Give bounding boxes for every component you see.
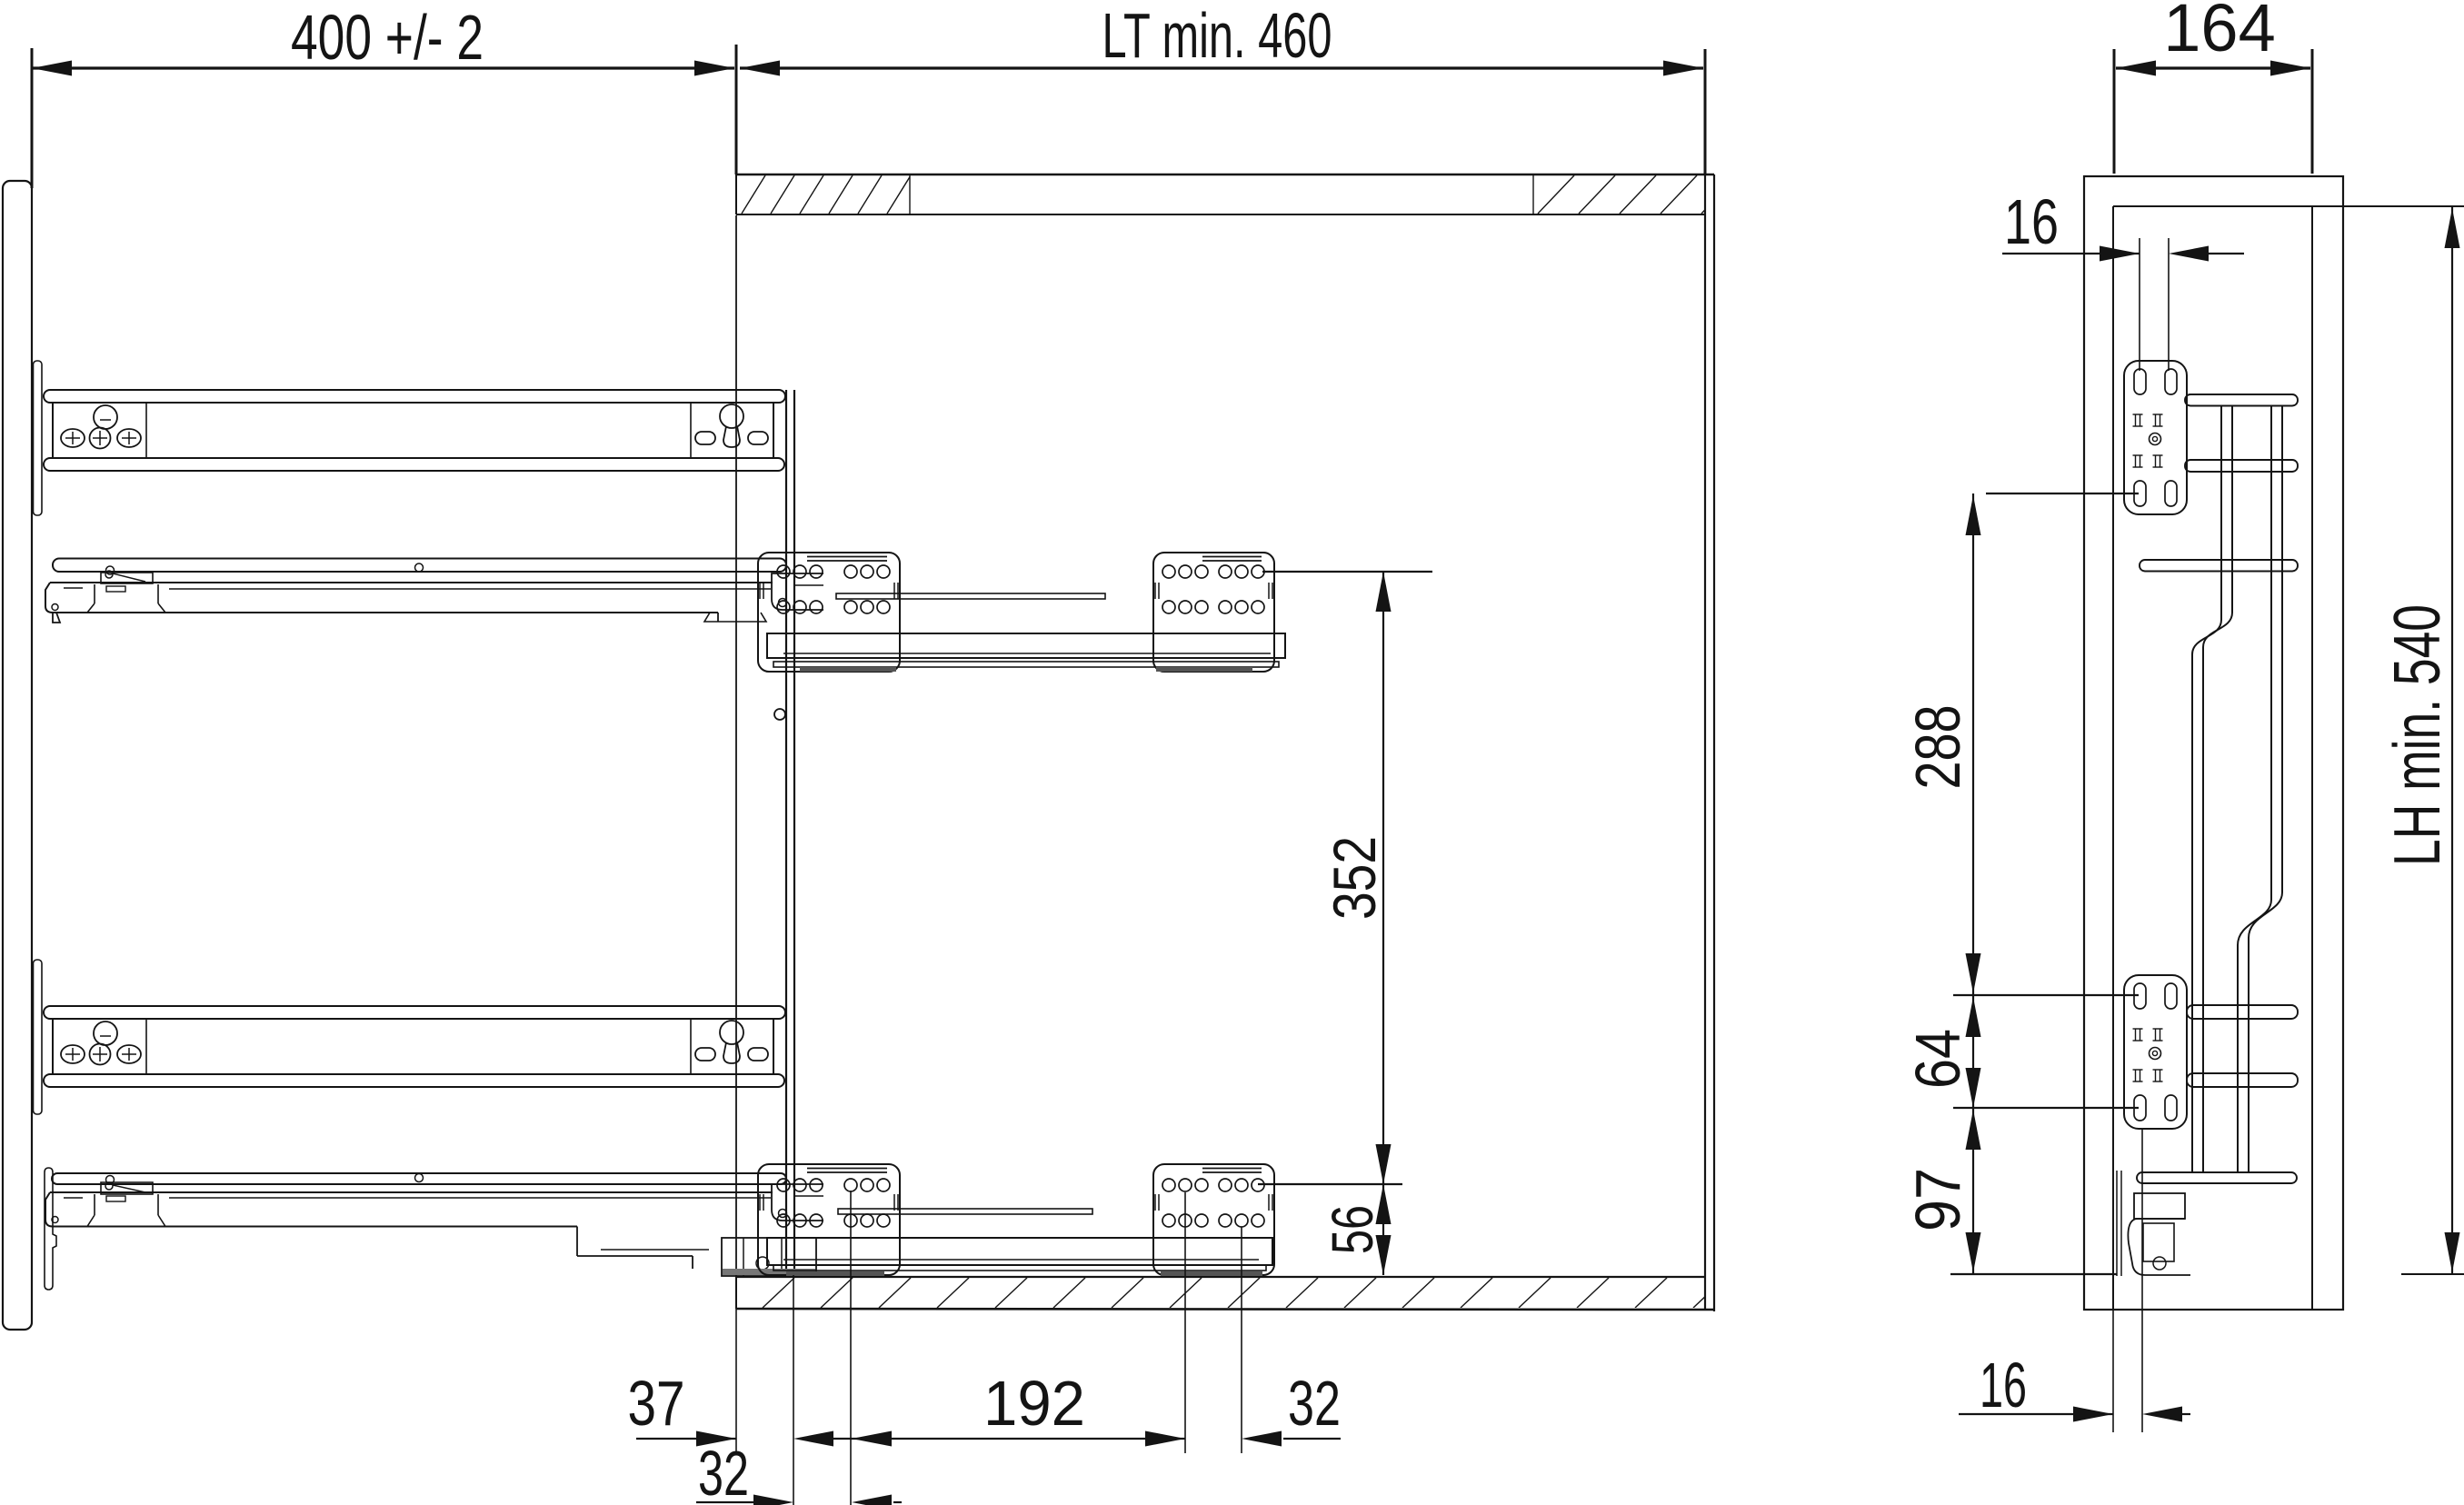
svg-text:16: 16 — [2004, 186, 2059, 257]
svg-text:56: 56 — [1320, 1205, 1385, 1254]
svg-text:64: 64 — [1902, 1029, 1973, 1089]
svg-text:192: 192 — [983, 1368, 1085, 1439]
svg-text:LT min. 460: LT min. 460 — [1102, 0, 1332, 71]
svg-text:400 +/- 2: 400 +/- 2 — [291, 2, 484, 73]
svg-text:288: 288 — [1902, 705, 1973, 790]
svg-text:164: 164 — [2163, 0, 2275, 65]
svg-text:32: 32 — [1288, 1368, 1341, 1439]
svg-text:37: 37 — [628, 1368, 685, 1439]
svg-text:32: 32 — [698, 1438, 749, 1505]
svg-text:16: 16 — [1980, 1350, 2027, 1420]
svg-text:352: 352 — [1321, 836, 1388, 920]
svg-text:LH min. 540: LH min. 540 — [2381, 604, 2454, 866]
svg-text:97: 97 — [1902, 1168, 1973, 1231]
